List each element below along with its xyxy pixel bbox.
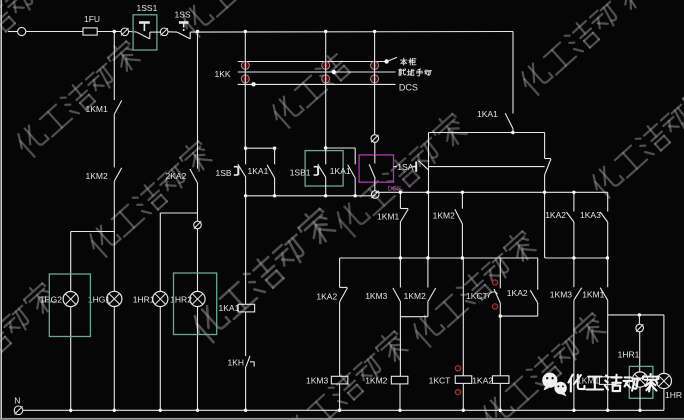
svg-text:1KA2: 1KA2 (316, 292, 337, 302)
svg-text:1KM3: 1KM3 (365, 291, 387, 301)
svg-text:1KM1: 1KM1 (582, 290, 604, 300)
svg-text:1KA1: 1KA1 (477, 109, 498, 119)
svg-text:1KM2: 1KM2 (433, 211, 455, 221)
svg-text:1SS: 1SS (175, 10, 191, 20)
svg-text:DCS: DCS (399, 83, 418, 93)
svg-text:1KM1: 1KM1 (377, 212, 399, 222)
svg-text:1KM2: 1KM2 (365, 376, 387, 386)
svg-text:1KK: 1KK (215, 69, 231, 79)
svg-text:1SA: 1SA (397, 162, 413, 172)
svg-text:1SB1: 1SB1 (290, 168, 311, 178)
svg-text:1KH: 1KH (228, 358, 245, 368)
svg-text:1SB: 1SB (216, 168, 232, 178)
svg-text:1KCT: 1KCT (429, 376, 451, 386)
svg-text:1KA2: 1KA2 (545, 210, 566, 220)
svg-text:1HR1: 1HR1 (618, 350, 640, 360)
svg-text:1KCT: 1KCT (466, 291, 488, 301)
svg-text:1KM3: 1KM3 (550, 290, 572, 300)
svg-text:1KA2: 1KA2 (507, 288, 528, 298)
svg-text:1KA1: 1KA1 (219, 303, 240, 313)
svg-text:1KM2: 1KM2 (404, 291, 426, 301)
svg-text:1FU: 1FU (84, 14, 100, 24)
svg-text:1HR: 1HR (665, 390, 682, 400)
svg-text:1KM1: 1KM1 (86, 104, 108, 114)
svg-text:N: N (14, 396, 20, 406)
svg-text:1KM2: 1KM2 (86, 171, 108, 181)
svg-text:1HG1: 1HG1 (88, 295, 110, 305)
svg-text:1SS1: 1SS1 (137, 3, 158, 13)
svg-text:1KA2: 1KA2 (472, 376, 493, 386)
svg-text:1HR1: 1HR1 (133, 295, 155, 305)
svg-text:1KA3: 1KA3 (580, 210, 601, 220)
svg-text:1KA1: 1KA1 (248, 166, 269, 176)
svg-text:1KA1: 1KA1 (330, 166, 351, 176)
svg-text:1KM3: 1KM3 (306, 376, 328, 386)
svg-text:2KA2: 2KA2 (166, 171, 187, 181)
svg-text:1HG2: 1HG2 (40, 295, 62, 305)
